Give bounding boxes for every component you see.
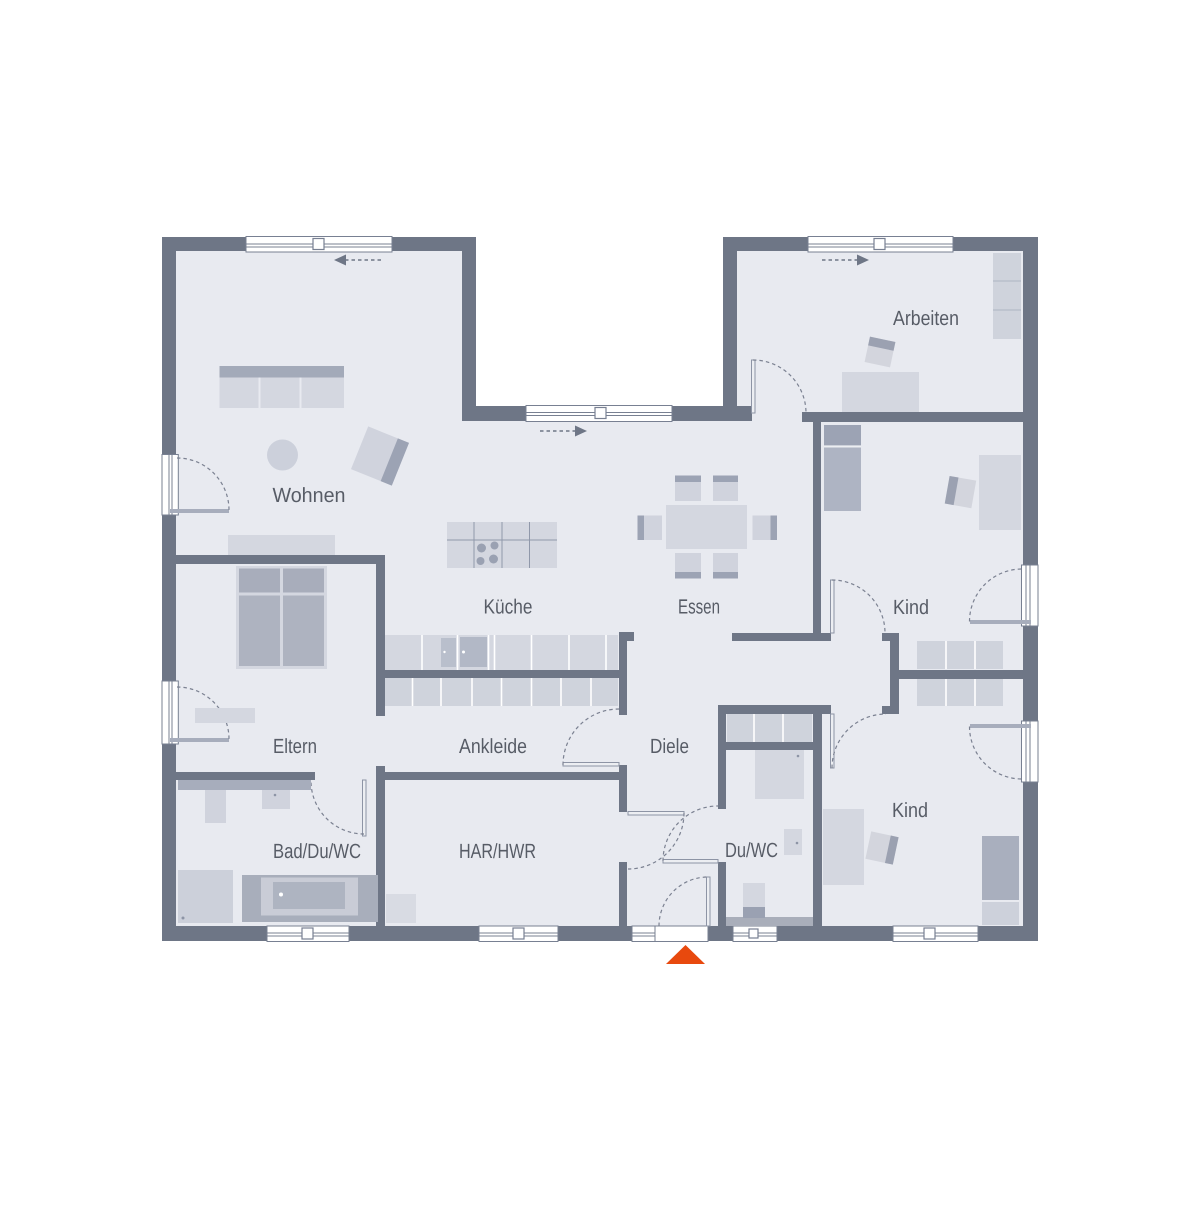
svg-text:Kind: Kind: [893, 596, 929, 619]
svg-text:Eltern: Eltern: [273, 735, 317, 758]
svg-text:Essen: Essen: [678, 596, 720, 619]
svg-text:Arbeiten: Arbeiten: [893, 307, 959, 330]
svg-text:Bad/Du/WC: Bad/Du/WC: [273, 840, 361, 863]
svg-text:Ankleide: Ankleide: [459, 735, 527, 758]
svg-text:Du/WC: Du/WC: [725, 839, 778, 862]
svg-text:Kind: Kind: [892, 799, 928, 822]
svg-text:Küche: Küche: [484, 596, 533, 619]
svg-text:Wohnen: Wohnen: [273, 484, 346, 507]
svg-text:HAR/HWR: HAR/HWR: [459, 840, 536, 863]
svg-text:Diele: Diele: [650, 735, 689, 758]
